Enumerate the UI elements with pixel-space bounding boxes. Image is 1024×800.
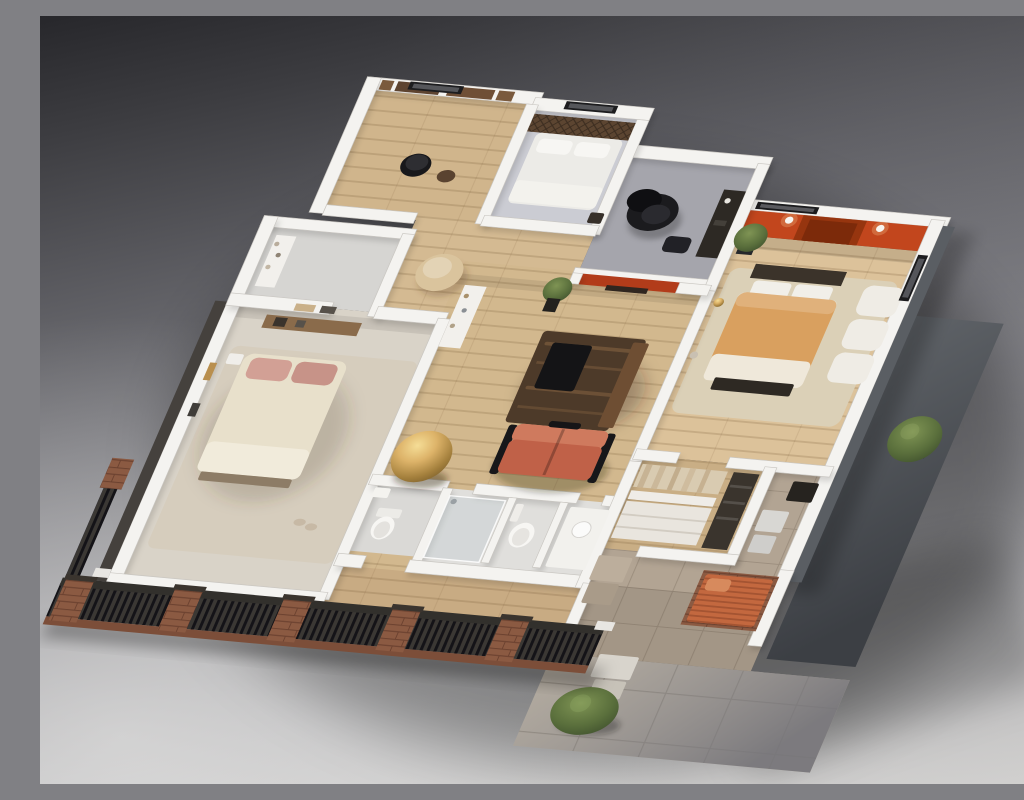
wall-frame-2 <box>319 306 337 314</box>
studio-backdrop: Photorealistic 3D isometric cutaway rend… <box>40 16 1024 784</box>
orange-door-inner <box>801 219 858 244</box>
wall-south-1 <box>333 553 366 568</box>
floor-plan-render <box>40 16 1024 784</box>
office-desk-item <box>713 220 727 226</box>
woven-pillow-2 <box>572 142 612 159</box>
closet-drawers <box>611 501 712 546</box>
woven-pillow-1 <box>535 138 575 155</box>
gate-post-cap <box>594 621 616 631</box>
